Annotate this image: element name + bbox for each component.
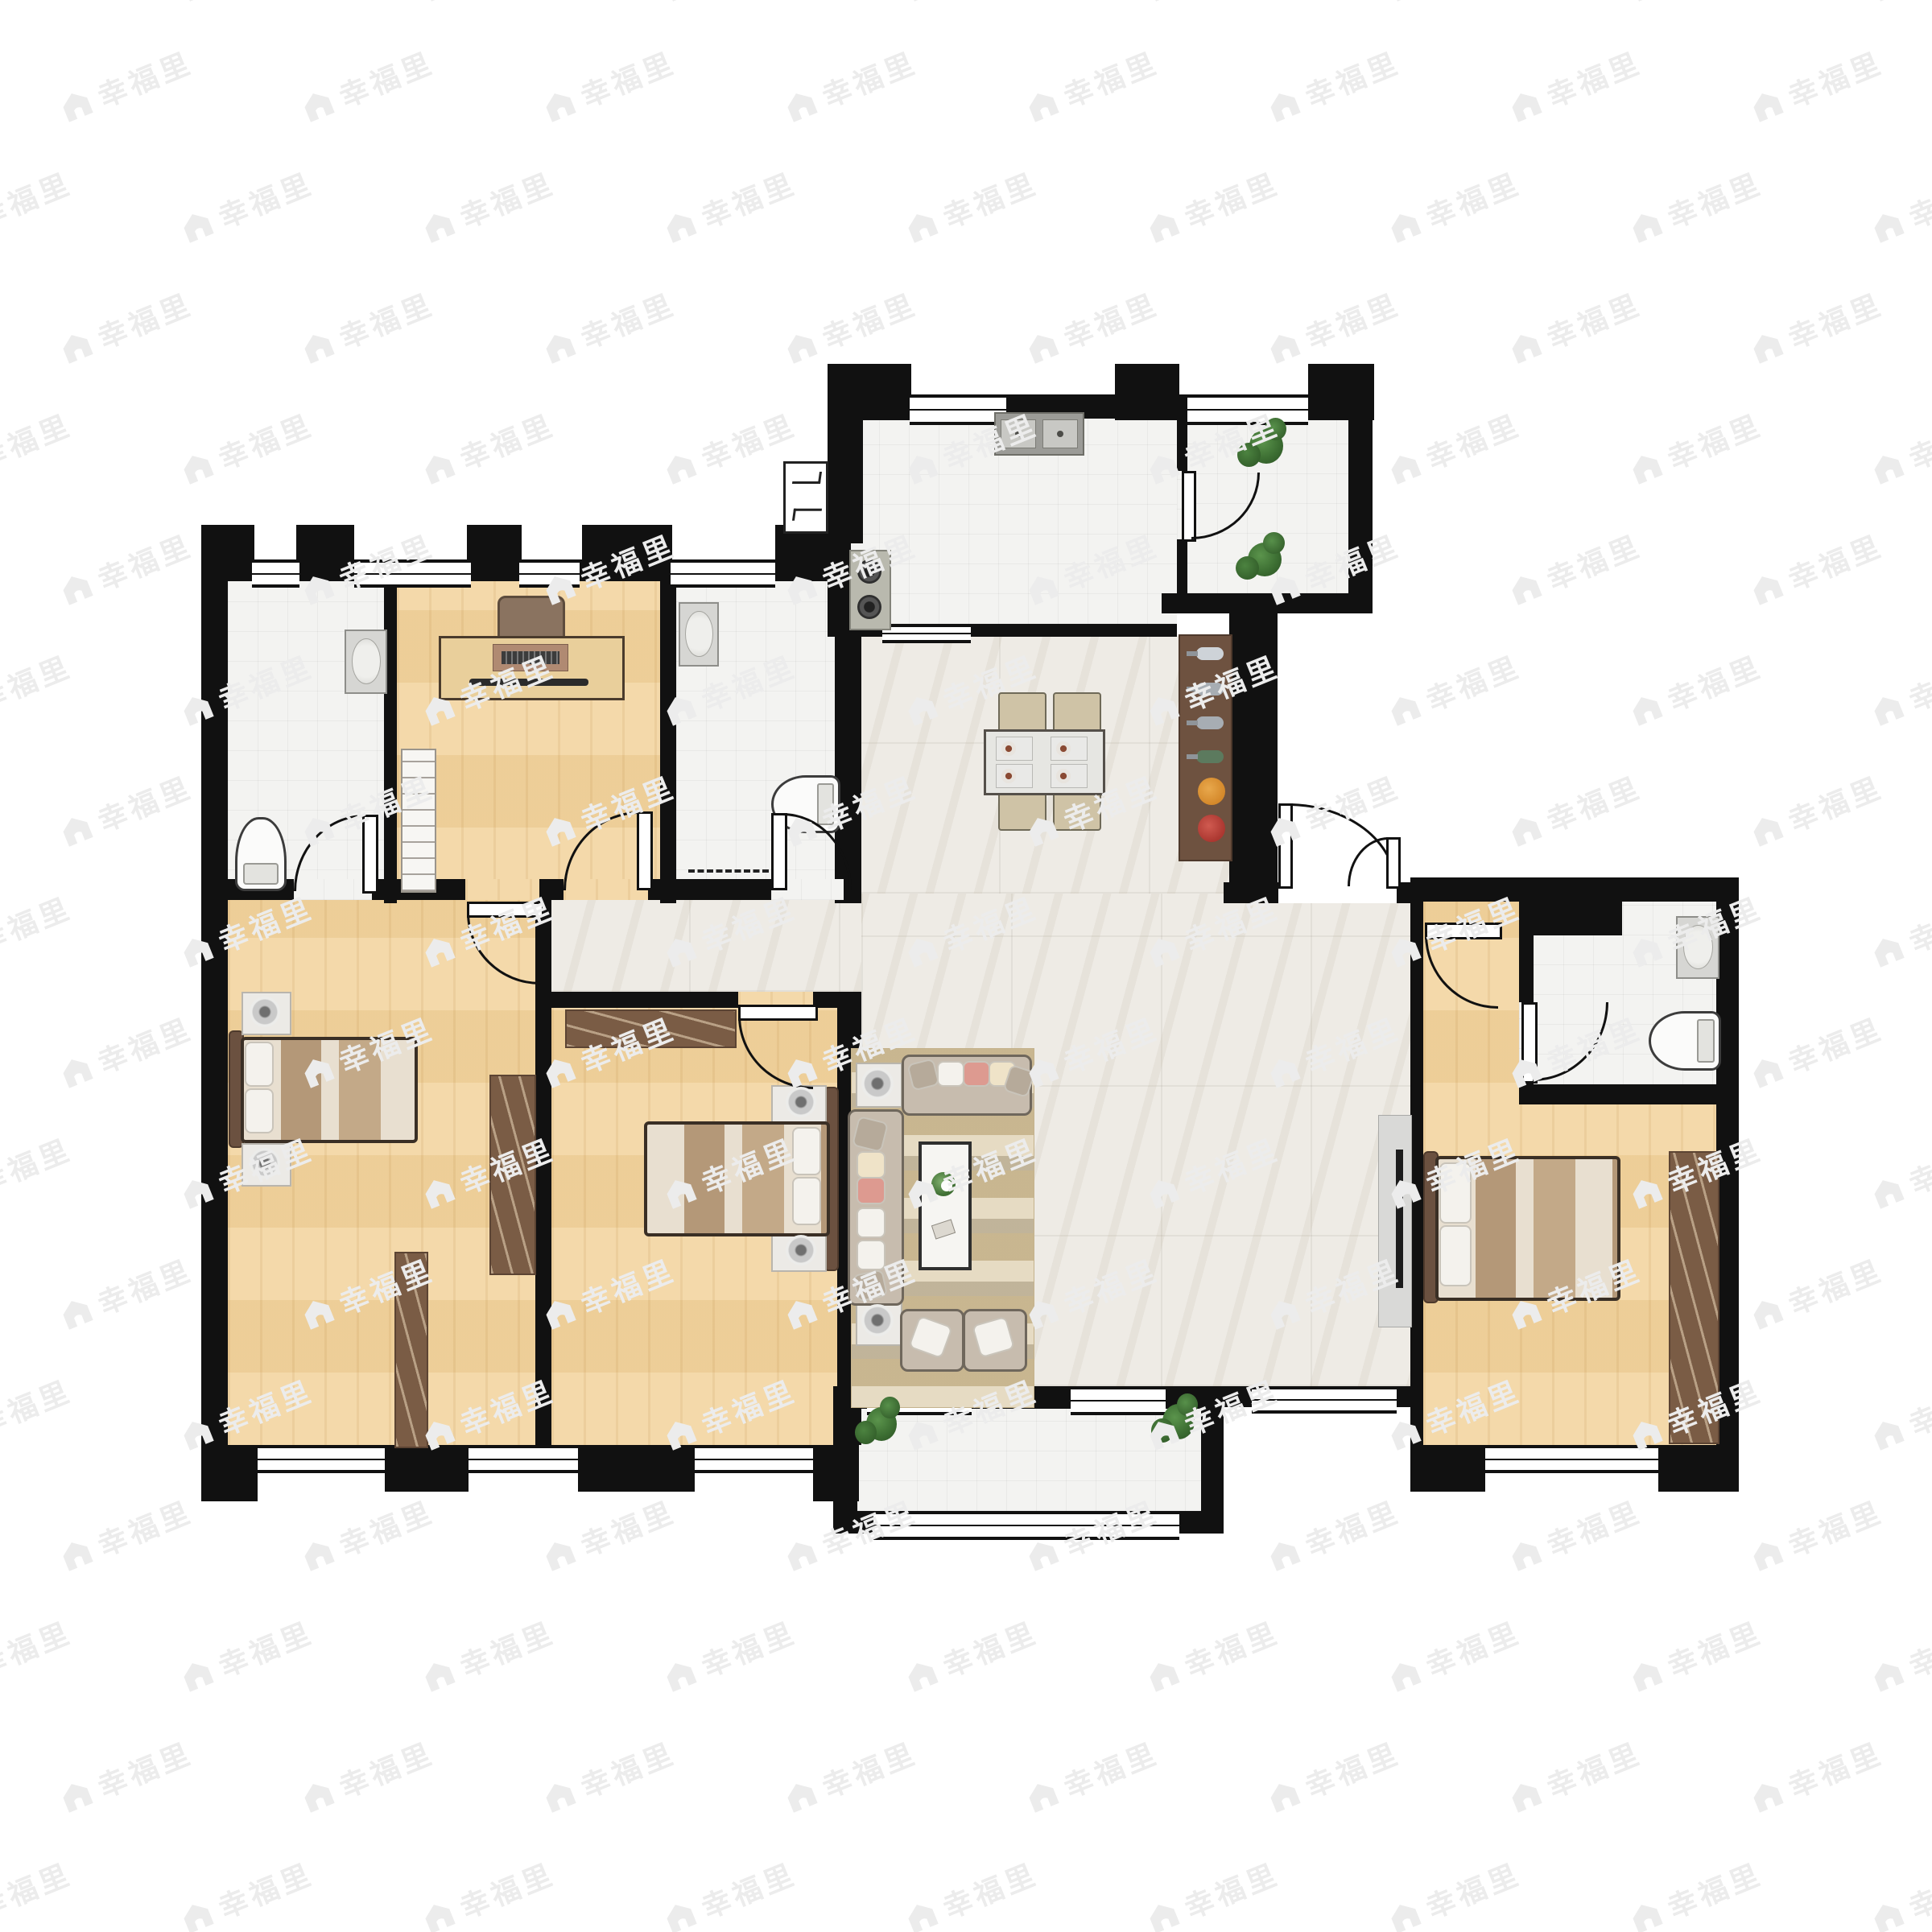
watermark-item: 幸福里 [1744,39,1889,130]
watermark-text: 幸福里 [1902,1126,1932,1202]
house-icon [901,0,943,6]
house-icon [1746,85,1788,126]
watermark-item: 幸福里 [658,160,803,251]
watermark-text: 幸福里 [0,402,77,477]
house-icon [901,205,943,247]
wall-segment [1410,877,1739,902]
watermark-item: 幸福里 [1744,1488,1889,1579]
dining-table [984,729,1105,795]
house-icon [1867,1896,1909,1932]
house-icon [1505,1775,1546,1817]
watermark-item: 幸福里 [1020,1730,1165,1821]
watermark-item: 幸福里 [658,1851,803,1932]
watermark-item: 幸福里 [1865,402,1932,493]
window [519,559,580,588]
watermark-text: 幸福里 [1540,764,1648,840]
watermark-text: 幸福里 [91,522,199,598]
house-icon [1142,1896,1184,1932]
watermark-item: 幸福里 [537,1730,682,1821]
house-icon [1625,0,1667,6]
watermark-item: 幸福里 [0,1609,77,1700]
watermark-item: 幸福里 [1503,281,1648,372]
watermark-text: 幸福里 [1057,1730,1165,1806]
watermark-text: 幸福里 [1540,39,1648,115]
house-icon [1867,447,1909,489]
watermark-text: 幸福里 [1419,1609,1527,1685]
house-icon [1505,326,1546,368]
house-icon [780,1534,822,1575]
house-icon [1384,1896,1426,1932]
watermark-text: 幸福里 [0,1609,77,1685]
house-icon [56,1775,97,1817]
window [1485,1445,1658,1473]
watermark-text: 幸福里 [1781,1005,1889,1081]
wall-pier [582,525,672,581]
wall-segment [1519,1084,1739,1104]
watermark-item: 幸福里 [54,1488,199,1579]
watermark-item: 幸福里 [54,1005,199,1096]
wine-bottle [1196,716,1224,729]
watermark-text: 幸福里 [815,39,923,115]
house-icon [56,85,97,126]
watermark-text: 幸福里 [1298,1488,1406,1564]
watermark-item: 幸福里 [1261,281,1406,372]
wall-segment [660,581,676,903]
watermark-item: 幸福里 [899,1609,1044,1700]
doorway [465,879,539,900]
watermark-item: 幸福里 [1503,1488,1648,1579]
watermark-item: 幸福里 [1865,1609,1932,1700]
watermark-item: 幸福里 [54,764,199,855]
house-icon [56,326,97,368]
watermark-text: 幸福里 [1781,1730,1889,1806]
house-icon [539,1534,580,1575]
house-icon [176,447,218,489]
watermark-item: 幸福里 [1261,39,1406,130]
watermark-text: 幸福里 [0,643,77,719]
house-icon [1142,0,1184,6]
wardrobe [489,1075,536,1275]
house-icon [1384,688,1426,730]
house-icon [418,1896,460,1932]
watermark-text: 幸福里 [1178,1851,1286,1926]
watermark-item: 幸福里 [0,160,77,251]
sofa-pillow [857,1151,885,1179]
wall-pier [1410,1445,1485,1492]
house-icon [780,326,822,368]
bed-pillow [245,1042,274,1087]
house-icon [1867,205,1909,247]
house-icon [539,1775,580,1817]
wall-segment [1410,877,1423,1445]
nightstand-lamp [250,1148,280,1179]
watermark-item: 幸福里 [1382,643,1527,734]
watermark-text: 幸福里 [1057,281,1165,357]
watermark-item: 幸福里 [1261,1488,1406,1579]
wall-pier [385,1445,469,1492]
watermark-text: 幸福里 [574,1488,682,1564]
house-icon [56,1534,97,1575]
watermark-item: 幸福里 [1865,1126,1932,1217]
watermark-text: 幸福里 [1298,1730,1406,1806]
gas-stove [849,550,891,630]
watermark-item: 幸福里 [416,1851,561,1932]
bed-pillow [792,1127,821,1175]
watermark-text: 幸福里 [332,39,440,115]
watermark-text: 幸福里 [1540,281,1648,357]
watermark-text: 幸福里 [1902,402,1932,477]
house-icon [176,0,218,6]
watermark-text: 幸福里 [1178,160,1286,236]
house-icon [901,1654,943,1696]
watermark-item: 幸福里 [1865,1368,1932,1459]
house-icon [1867,1654,1909,1696]
nightstand-lamp [786,1235,816,1265]
house-icon [539,85,580,126]
house-icon [1746,809,1788,851]
house-icon [418,0,460,6]
bed-pillow [792,1177,821,1225]
watermark-item: 幸福里 [899,160,1044,251]
wine-bottle [1196,750,1224,763]
watermark-text: 幸福里 [1781,39,1889,115]
watermark-item: 幸福里 [1141,1851,1286,1932]
watermark-text: 幸福里 [1902,1851,1932,1926]
wall-segment [828,543,849,637]
bed-pillow [1439,1162,1472,1224]
place-setting [996,737,1033,761]
watermark-text: 幸福里 [91,764,199,840]
watermark-text: 幸福里 [1661,1851,1769,1926]
watermark-text: 幸福里 [1781,764,1889,840]
window [354,559,471,588]
window [258,1445,385,1473]
tv-screen [1396,1150,1403,1288]
watermark-text: 幸福里 [936,1851,1044,1926]
watermark-text: 幸福里 [936,160,1044,236]
house-icon [1867,0,1909,6]
decanter [1198,815,1225,842]
wardrobe [1669,1151,1719,1444]
watermark-item: 幸福里 [1624,402,1769,493]
watermark-text: 幸福里 [1298,281,1406,357]
watermark-text: 幸福里 [212,160,320,236]
watermark-item: 幸福里 [1744,1730,1889,1821]
watermark-item: 幸福里 [0,885,77,976]
watermark-item: 幸福里 [54,1730,199,1821]
watermark-text: 幸福里 [453,1609,561,1685]
watermark-text: 幸福里 [0,1851,77,1926]
house-icon [1746,1292,1788,1334]
watermark-item: 幸福里 [175,160,320,251]
watermark-item: 幸福里 [416,1609,561,1700]
kitchen-pass-window [882,624,971,643]
window [873,1511,1179,1540]
house-icon [1746,1534,1788,1575]
watermark-item: 幸福里 [1382,160,1527,251]
watermark-item: 幸福里 [295,39,440,130]
watermark-item: 幸福里 [1865,1851,1932,1932]
watermark-text: 幸福里 [1902,643,1932,719]
watermark-text: 幸福里 [574,39,682,115]
kitchen-sink [994,412,1084,456]
house-icon [1746,1051,1788,1092]
house-icon [176,1654,218,1696]
place-setting [1051,764,1088,788]
door-leaf [362,815,378,894]
house-icon [1746,1775,1788,1817]
house-icon [1505,809,1546,851]
house-icon [1022,85,1063,126]
house-icon [1384,0,1426,6]
watermark-text: 幸福里 [91,1488,199,1564]
wall-segment [1229,613,1278,903]
watermark-item: 幸福里 [0,402,77,493]
watermark-item: 幸福里 [54,1247,199,1338]
house-icon [1746,326,1788,368]
toilet [235,817,287,891]
window [469,1445,578,1473]
house-icon [418,205,460,247]
watermark-item: 幸福里 [175,1609,320,1700]
wall-segment [1716,877,1739,1467]
sink [1676,916,1719,979]
watermark-item: 幸福里 [1624,1609,1769,1700]
table-lamp [861,1304,894,1336]
watermark-item: 幸福里 [1503,764,1648,855]
watermark-item: 幸福里 [175,1851,320,1932]
watermark-text: 幸福里 [695,1851,803,1926]
sink-basin [1042,419,1078,448]
house-icon [1142,205,1184,247]
house-icon [56,1051,97,1092]
water-heater [783,461,828,534]
potted-plant [866,1407,897,1441]
watermark-text: 幸福里 [91,1005,199,1081]
watermark-item: 幸福里 [1865,0,1932,10]
watermark-text: 幸福里 [332,281,440,357]
watermark-item: 幸福里 [1624,160,1769,251]
watermark-text: 幸福里 [1781,1247,1889,1323]
watermark-item: 幸福里 [899,0,1044,10]
wardrobe [394,1252,428,1448]
watermark-text: 幸福里 [1902,160,1932,236]
watermark-item: 幸福里 [1744,1005,1889,1096]
watermark-item: 幸福里 [1744,281,1889,372]
place-setting [996,764,1033,788]
house-icon [1505,568,1546,609]
house-icon [1263,1775,1305,1817]
watermark-item: 幸福里 [1141,0,1286,10]
watermark-text: 幸福里 [453,402,561,477]
house-icon [176,1896,218,1932]
watermark-text: 幸福里 [0,160,77,236]
watermark-item: 幸福里 [0,0,77,10]
watermark-text: 幸福里 [1661,160,1769,236]
nightstand-lamp [250,997,280,1027]
window [671,559,775,588]
watermark-text: 幸福里 [1419,643,1527,719]
watermark-text: 幸福里 [332,1488,440,1564]
watermark-text: 幸福里 [91,1730,199,1806]
watermark-item: 幸福里 [175,402,320,493]
shower-screen [688,869,769,873]
wall-segment [828,394,863,543]
house-icon [659,1654,701,1696]
watermark-item: 幸福里 [1624,0,1769,10]
watermark-item: 幸福里 [1382,402,1527,493]
sofa-pillow [857,1177,885,1204]
house-icon [780,1775,822,1817]
watermark-text: 幸福里 [1419,402,1527,477]
watermark-item: 幸福里 [416,0,561,10]
watermark-item: 幸福里 [1382,0,1527,10]
house-icon [1505,85,1546,126]
toilet [1649,1011,1721,1071]
window [695,1445,813,1473]
watermark-item: 幸福里 [658,402,803,493]
watermark-text: 幸福里 [1540,1488,1648,1564]
watermark-item: 幸福里 [1503,39,1648,130]
house-icon [659,205,701,247]
watermark-item: 幸福里 [1744,522,1889,613]
decanter [1198,778,1225,805]
watermark-text: 幸福里 [1419,160,1527,236]
sofa-pillow [937,1061,964,1087]
house-icon [297,326,339,368]
watermark-text: 幸福里 [1419,1851,1527,1926]
watermark-item: 幸福里 [1865,160,1932,251]
watermark-text: 幸福里 [936,1609,1044,1685]
watermark-text: 幸福里 [212,1609,320,1685]
house-icon [1746,568,1788,609]
keyboard [493,644,568,671]
burner [857,559,881,584]
watermark-text: 幸福里 [1057,39,1165,115]
sink-basin [1001,419,1036,448]
watermark-item: 幸福里 [175,0,320,10]
watermark-item: 幸福里 [1503,522,1648,613]
table-lamp [861,1067,894,1100]
house-icon [1625,447,1667,489]
watermark-item: 幸福里 [0,643,77,734]
house-icon [297,1775,339,1817]
watermark-text: 幸福里 [1781,1488,1889,1564]
house-icon [539,326,580,368]
watermark-item: 幸福里 [1382,1851,1527,1932]
watermark-item: 幸福里 [1141,160,1286,251]
house-icon [1022,326,1063,368]
watermark-item: 幸福里 [537,1488,682,1579]
watermark-text: 幸福里 [574,281,682,357]
wine-bottle [1196,647,1224,660]
watermark-item: 幸福里 [658,0,803,10]
house-icon [297,85,339,126]
house-icon [1625,688,1667,730]
house-icon [1625,1896,1667,1932]
wardrobe [565,1009,737,1048]
watermark-text: 幸福里 [332,1730,440,1806]
watermark-text: 幸福里 [1540,1730,1648,1806]
watermark-item: 幸福里 [54,39,199,130]
watermark-item: 幸福里 [295,1730,440,1821]
window [1187,394,1308,425]
house-icon [1625,205,1667,247]
watermark-text: 幸福里 [1781,522,1889,598]
book [931,1219,956,1239]
wall-pier [201,1445,258,1501]
watermark-item: 幸福里 [778,281,923,372]
keyboard-keys [502,651,559,664]
watermark-text: 幸福里 [1661,402,1769,477]
potted-plant [1249,428,1283,464]
house-icon [56,809,97,851]
bed-pillow [245,1088,274,1133]
wall-segment [201,559,228,1467]
watermark-text: 幸福里 [91,39,199,115]
watermark-item: 幸福里 [416,402,561,493]
house-icon [1022,1775,1063,1817]
watermark-item: 幸福里 [1261,1730,1406,1821]
house-icon [56,1292,97,1334]
house-icon [1867,930,1909,972]
wall-segment [1348,394,1373,613]
house-icon [1263,326,1305,368]
watermark-item: 幸福里 [1744,1247,1889,1338]
watermark-text: 幸福里 [1540,522,1648,598]
watermark-text: 幸福里 [1661,643,1769,719]
house-icon [1384,205,1426,247]
wall-pier [578,1445,695,1492]
house-icon [1384,447,1426,489]
window [252,559,299,588]
house-icon [56,568,97,609]
watermark-text: 幸福里 [815,1730,923,1806]
watermark-item: 幸福里 [1141,1609,1286,1700]
watermark-item: 幸福里 [1020,39,1165,130]
tv-console [1378,1115,1412,1327]
wall-segment [1534,902,1622,935]
watermark-item: 幸福里 [899,1851,1044,1932]
burner [857,595,881,619]
watermark-text: 幸福里 [695,160,803,236]
watermark-item: 幸福里 [1744,764,1889,855]
bookshelf [401,749,436,893]
sofa-pillow [857,1240,885,1270]
watermark-item: 幸福里 [1865,643,1932,734]
house-icon [1625,1654,1667,1696]
watermark-text: 幸福里 [1178,1609,1286,1685]
wall-pier [1115,364,1179,420]
watermark-text: 幸福里 [0,1126,77,1202]
watermark-text: 幸福里 [1781,281,1889,357]
watermark-item: 幸福里 [778,39,923,130]
watermark-item: 幸福里 [778,1730,923,1821]
place-setting [1051,737,1088,761]
watermark-text: 幸福里 [1298,39,1406,115]
potted-plant [1248,543,1282,576]
watermark-text: 幸福里 [91,281,199,357]
watermark-text: 幸福里 [212,1851,320,1926]
wall-pier [296,525,354,581]
house-icon [418,1654,460,1696]
house-icon [659,0,701,6]
watermark-text: 幸福里 [574,1730,682,1806]
watermark-text: 幸福里 [1902,1609,1932,1685]
window [1071,1386,1166,1415]
watermark-item: 幸福里 [54,281,199,372]
house-icon [1384,1654,1426,1696]
